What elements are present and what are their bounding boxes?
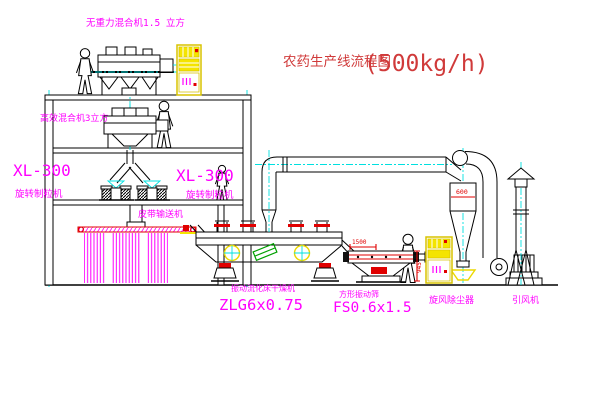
flow-diagram-canvas: 600 [0,0,600,403]
label-belt-conveyor: 皮带输送机 [138,208,183,220]
label-dryer-model: ZLG6x0.75 [219,296,303,314]
vibrating-screen: 1500 945 [343,239,429,282]
cyclone-diameter-dim: 600 [456,188,468,196]
screen-height-dim: 945 [416,262,423,273]
conveyor-supports [84,233,168,283]
label-top-mixer: 无重力混合机1.5 立方 [86,17,185,29]
label-granulator-left-model: XL-300 [13,161,71,180]
exhaust-duct [255,150,461,232]
dryer-inner-part [253,244,277,261]
person-roof [76,49,93,94]
label-dryer-name: 振动流化床干燥机 [231,283,295,293]
drawing: 600 [0,0,600,403]
induced-draft-fan [491,255,543,285]
granulator-left [99,186,134,200]
label-cyclone: 旋风除尘器 [429,294,474,306]
granulator-right [135,186,170,200]
exhaust-stack [508,162,534,285]
cyclone-dust-collector: 600 [450,148,476,283]
label-granulator-right-name: 旋转制粒机 [186,189,234,201]
label-granulator-right-model: XL-300 [176,166,234,185]
label-granulator-left-name: 旋转制粒机 [15,188,63,200]
screen-length-dim: 1500 [352,239,367,246]
label-screen-name: 方形振动筛 [339,289,379,299]
control-cabinet-1 [177,45,201,95]
fluid-bed-dryer [190,221,356,281]
label-mid-mixer: 高效混合机3立方 [40,112,108,124]
granulator-feed-chute [108,150,160,188]
page-title-capacity: (500kg/h) [364,51,489,77]
label-screen-model: FS0.6x1.5 [333,300,412,316]
label-fan: 引风机 [512,294,539,306]
control-cabinet-2 [426,237,452,283]
